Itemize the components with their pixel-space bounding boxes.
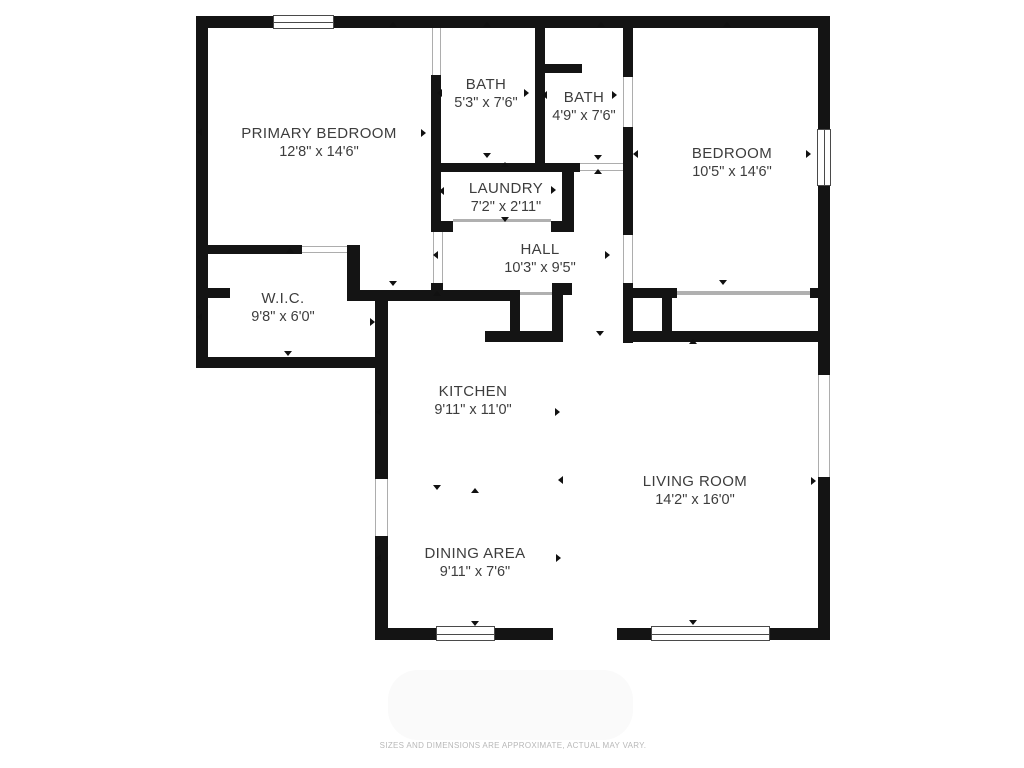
window-top-primary-bedroom xyxy=(273,15,334,29)
room-dimensions: 4'9" x 7'6" xyxy=(552,107,615,126)
door-bath2-to-bedroom xyxy=(623,77,633,127)
wall-segment xyxy=(562,165,574,232)
wall-segment xyxy=(662,298,672,333)
dimension-marker-down-icon xyxy=(389,281,397,286)
room-dimensions: 14'2" x 16'0" xyxy=(655,491,735,510)
room-dimensions: 9'8" x 6'0" xyxy=(251,308,314,327)
wall-segment xyxy=(196,357,388,368)
dimension-marker-right-icon xyxy=(421,129,426,137)
wall-segment xyxy=(431,75,441,232)
dimension-marker-left-icon xyxy=(633,150,638,158)
dimension-marker-up-icon xyxy=(286,248,294,253)
dimension-marker-down-icon xyxy=(284,351,292,356)
dimension-marker-down-icon xyxy=(483,153,491,158)
wall-segment xyxy=(375,536,388,640)
window-pane-line xyxy=(437,634,494,635)
room-label-bath-1: BATH5'3" x 7'6" xyxy=(454,76,517,113)
room-dimensions: 12'8" x 14'6" xyxy=(279,143,359,162)
door-wic xyxy=(302,246,347,253)
room-name: PRIMARY BEDROOM xyxy=(241,125,396,143)
wall-segment xyxy=(818,16,830,130)
room-name: BATH xyxy=(564,89,605,107)
dimension-marker-right-icon xyxy=(806,150,811,158)
patio-slider-living xyxy=(818,375,830,477)
opening-kitchen-west xyxy=(375,479,388,536)
room-dimensions: 5'3" x 7'6" xyxy=(454,94,517,113)
room-name: LAUNDRY xyxy=(469,180,543,198)
dimension-marker-down-icon xyxy=(689,620,697,625)
room-label-laundry: LAUNDRY7'2" x 2'11" xyxy=(469,180,543,217)
window-living-south xyxy=(651,626,770,641)
room-label-dining-area: DINING AREA9'11" x 7'6" xyxy=(424,545,525,582)
dimension-marker-down-icon xyxy=(501,217,509,222)
wall-segment xyxy=(552,290,563,340)
dimension-marker-left-icon xyxy=(376,408,381,416)
room-label-wic: W.I.C.9'8" x 6'0" xyxy=(251,290,314,327)
dimension-marker-right-icon xyxy=(811,477,816,485)
dimension-marker-down-icon xyxy=(596,331,604,336)
dimension-marker-up-icon xyxy=(471,488,479,493)
wall-segment xyxy=(196,288,230,298)
window-pane-line xyxy=(824,130,825,185)
wall-segment xyxy=(535,28,545,172)
wall-segment xyxy=(623,28,633,77)
watermark-blob xyxy=(388,670,633,740)
room-dimensions: 10'3" x 9'5" xyxy=(504,259,575,278)
room-name: DINING AREA xyxy=(424,545,525,563)
dimension-marker-right-icon xyxy=(605,251,610,259)
dimension-marker-right-icon xyxy=(370,318,375,326)
room-name: W.I.C. xyxy=(261,290,304,308)
dimension-marker-down-icon xyxy=(594,155,602,160)
dimension-marker-right-icon xyxy=(556,554,561,562)
wall-segment xyxy=(623,127,633,235)
wall-segment xyxy=(625,331,820,342)
window-bedroom-east xyxy=(817,129,831,186)
dimension-marker-up-icon xyxy=(594,169,602,174)
dimension-marker-down-icon xyxy=(471,621,479,626)
room-label-living-room: LIVING ROOM14'2" x 16'0" xyxy=(643,473,747,510)
dimension-marker-up-icon xyxy=(501,162,509,167)
dimension-marker-up-icon xyxy=(389,22,397,27)
dimension-marker-left-icon xyxy=(558,476,563,484)
dimension-marker-right-icon xyxy=(551,186,556,194)
room-dimensions: 9'11" x 7'6" xyxy=(440,563,510,582)
room-dimensions: 9'11" x 11'0" xyxy=(434,401,511,420)
dimension-marker-right-icon xyxy=(555,408,560,416)
window-dining-south xyxy=(436,626,495,641)
dimension-marker-left-icon xyxy=(197,313,202,321)
wall-segment xyxy=(818,185,830,375)
wall-segment xyxy=(551,221,562,232)
window-pane-line xyxy=(274,22,333,23)
dimension-marker-left-icon xyxy=(376,554,381,562)
wall-segment xyxy=(441,221,453,232)
room-label-bedroom: BEDROOM10'5" x 14'6" xyxy=(692,145,772,182)
wall-segment xyxy=(633,288,677,298)
dimension-marker-up-icon xyxy=(433,291,441,296)
dimension-marker-left-icon xyxy=(542,91,547,99)
room-label-primary-bedroom: PRIMARY BEDROOM12'8" x 14'6" xyxy=(241,125,396,162)
room-name: BEDROOM xyxy=(692,145,772,163)
dimension-marker-down-icon xyxy=(433,485,441,490)
wall-segment xyxy=(552,283,572,295)
room-name: KITCHEN xyxy=(439,383,508,401)
dimension-marker-left-icon xyxy=(197,128,202,136)
room-name: HALL xyxy=(520,241,559,259)
door-primary-to-bath xyxy=(432,28,441,75)
dimension-marker-up-icon xyxy=(689,339,697,344)
dimension-marker-up-icon xyxy=(597,22,605,27)
closet-front-hall xyxy=(520,292,552,295)
room-dimensions: 7'2" x 2'11" xyxy=(471,198,541,217)
dimension-marker-down-icon xyxy=(719,280,727,285)
room-label-bath-2: BATH4'9" x 7'6" xyxy=(552,89,615,126)
room-label-kitchen: KITCHEN9'11" x 11'0" xyxy=(434,383,511,420)
dimension-marker-up-icon xyxy=(483,22,491,27)
dimension-marker-left-icon xyxy=(437,89,442,97)
dimension-marker-right-icon xyxy=(524,89,529,97)
wall-segment xyxy=(375,299,388,479)
door-bedroom xyxy=(623,235,633,283)
room-name: LIVING ROOM xyxy=(643,473,747,491)
floor-plan: PRIMARY BEDROOM12'8" x 14'6"BATH5'3" x 7… xyxy=(0,0,1024,768)
closet-slider-bedroom xyxy=(677,291,810,295)
wall-segment xyxy=(818,477,830,640)
dimension-marker-up-icon xyxy=(723,22,731,27)
room-name: BATH xyxy=(466,76,507,94)
window-pane-line xyxy=(652,634,769,635)
wall-segment xyxy=(810,288,818,298)
dimension-marker-left-icon xyxy=(433,251,438,259)
wall-segment xyxy=(545,64,582,73)
dimension-marker-left-icon xyxy=(439,187,444,195)
disclaimer-text: SIZES AND DIMENSIONS ARE APPROXIMATE, AC… xyxy=(300,741,726,750)
room-dimensions: 10'5" x 14'6" xyxy=(692,163,772,182)
room-label-hall: HALL10'3" x 9'5" xyxy=(504,241,575,278)
wall-segment xyxy=(334,16,830,28)
